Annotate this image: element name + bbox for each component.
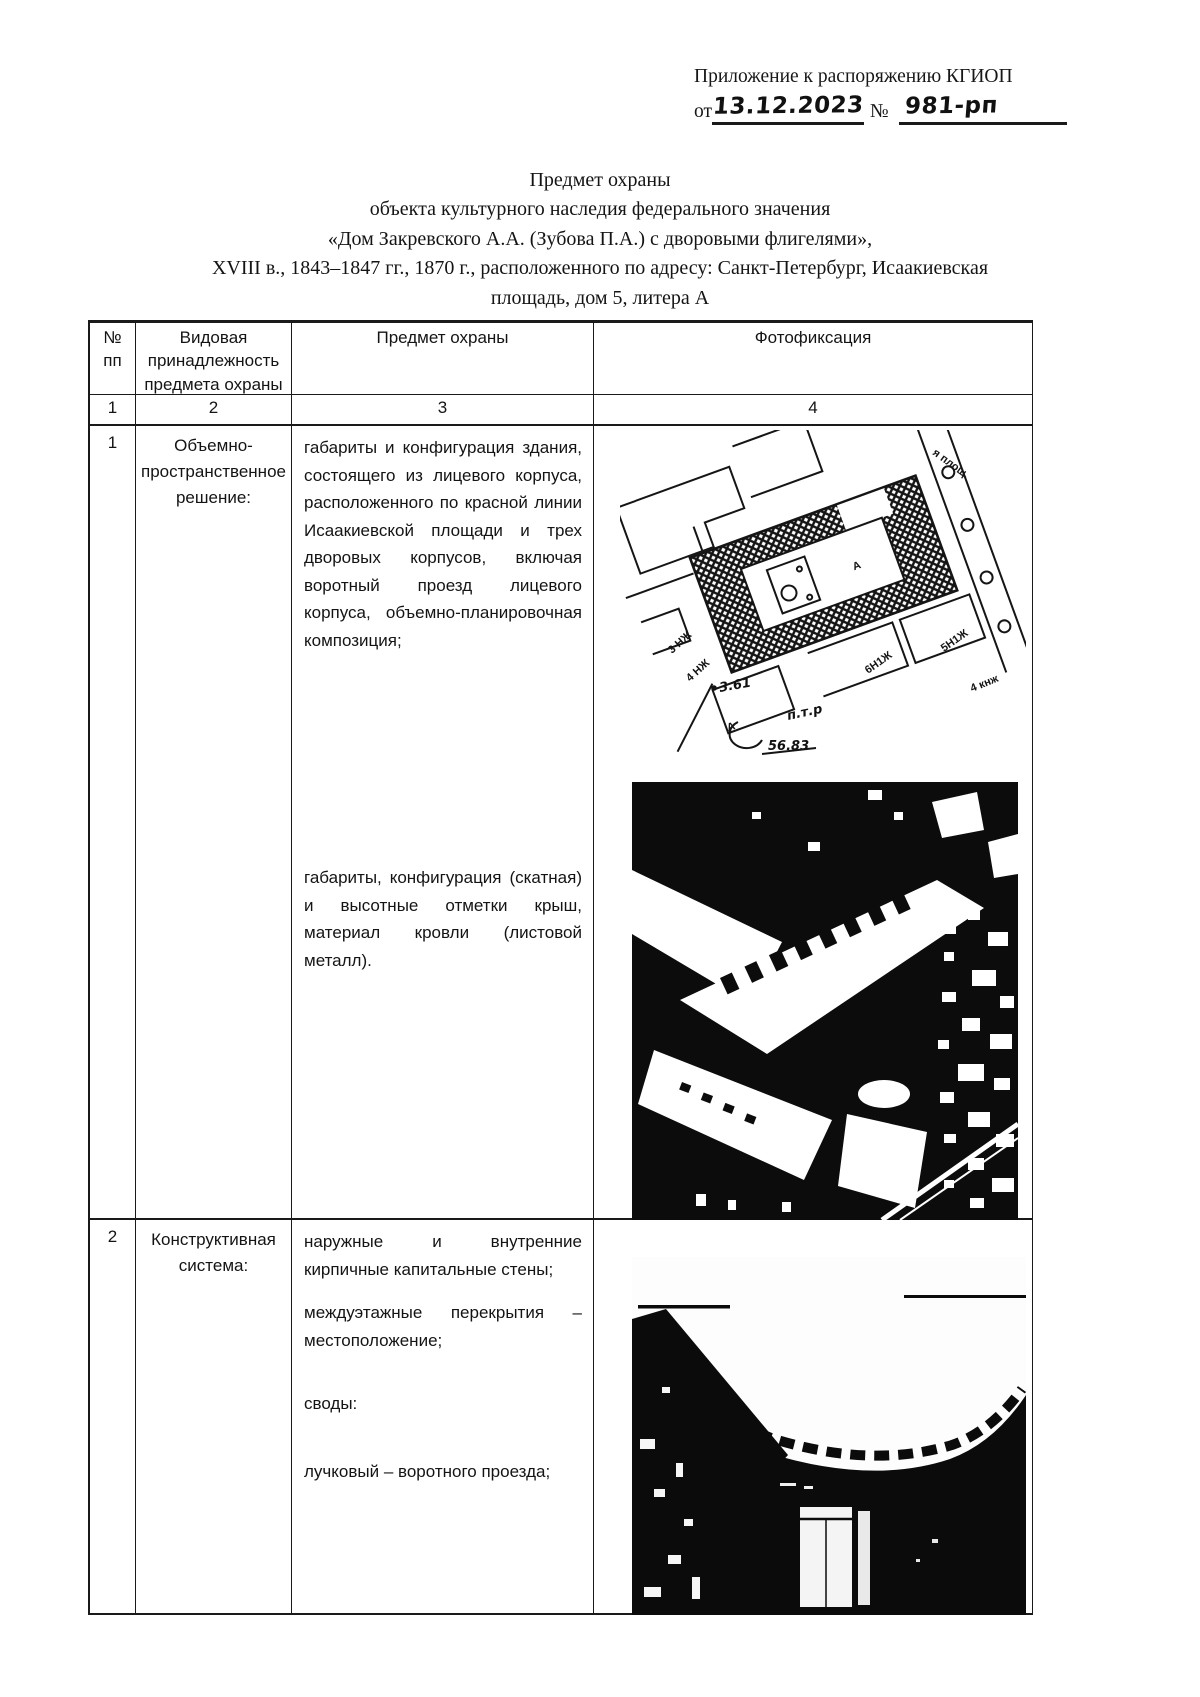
row1-photo-cell: А я площ. 3 НЖ 4 НЖ 3.61 А 6Н1Ж 5Н1Ж 4 к… [594, 426, 1033, 1220]
row1-paragraph-2: габариты, конфигурация (скатная) и высот… [304, 864, 582, 974]
title-line-2: объекта культурного наследия федеральног… [0, 195, 1200, 224]
row2-paragraph-2: междуэтажные перекрытия – местоположение… [304, 1299, 582, 1354]
row1-category: Объемно-пространственное решение: [136, 426, 292, 1220]
header-cell-subject: Предмет охраны [292, 323, 594, 395]
header-cell-num: № пп [90, 323, 136, 395]
column-number-1: 1 [90, 395, 136, 426]
annex-from-label: от [694, 99, 712, 124]
gateway-arch-photo-image [632, 1257, 1026, 1615]
annex-header-line2: от 13.12.2023 № 981-рп [694, 93, 1054, 124]
annex-number-underline: 981-рп [899, 93, 1067, 124]
title-line-1: Предмет охраны [0, 166, 1200, 195]
annex-no-label: № [870, 99, 889, 124]
header-num-line2: пп [90, 349, 135, 372]
table-row-1: 1 Объемно-пространственное решение: габа… [90, 426, 1033, 1220]
header-cell-photo: Фотофиксация [594, 323, 1033, 395]
row2-category: Конструктивная система: [136, 1220, 292, 1615]
annex-header-line1: Приложение к распоряжению КГИОП [694, 64, 1054, 89]
title-line-4: XVIII в., 1843–1847 гг., 1870 г., распол… [0, 254, 1200, 283]
row2-paragraph-1: наружные и внутренние кирпичные капиталь… [304, 1228, 582, 1283]
document-title: Предмет охраны объекта культурного насле… [0, 166, 1200, 313]
handwritten-number: 981-рп [904, 93, 999, 120]
row1-subject-text: габариты и конфигурация здания, состояще… [292, 426, 594, 1220]
row2-photo-cell [594, 1220, 1033, 1615]
protection-subject-table: № пп Видовая принадлежность предмета охр… [88, 320, 1033, 1615]
handwritten-date: 13.12.2023 [712, 93, 865, 121]
annex-date-underline: 13.12.2023 [712, 93, 864, 124]
row1-paragraph-1: габариты и конфигурация здания, состояще… [304, 434, 582, 654]
header-cell-category: Видовая принадлежность предмета охраны [136, 323, 292, 395]
table-row-2: 2 Конструктивная система: наружные и вну… [90, 1220, 1033, 1615]
aerial-roof-photo-image [632, 782, 1018, 1220]
row2-paragraph-3: своды: [304, 1390, 582, 1418]
column-number-2: 2 [136, 395, 292, 426]
row2-paragraph-4: лучковый – воротного проезда; [304, 1458, 582, 1486]
row1-number: 1 [90, 426, 136, 1220]
column-number-row: 1 2 3 4 [90, 395, 1033, 426]
site-plan-map-image: А я площ. 3 НЖ 4 НЖ 3.61 А 6Н1Ж 5Н1Ж 4 к… [620, 430, 1026, 760]
column-number-3: 3 [292, 395, 594, 426]
title-line-3: «Дом Закревского А.А. (Зубова П.А.) с дв… [0, 225, 1200, 254]
row2-subject-text: наружные и внутренние кирпичные капиталь… [292, 1220, 594, 1615]
map-elevation-dot [711, 685, 717, 691]
header-num-line1: № [90, 326, 135, 349]
row2-number: 2 [90, 1220, 136, 1615]
table-header-row: № пп Видовая принадлежность предмета охр… [90, 323, 1033, 395]
title-line-5: площадь, дом 5, литера А [0, 284, 1200, 313]
document-page: Приложение к распоряжению КГИОП от 13.12… [0, 0, 1200, 1697]
annex-header: Приложение к распоряжению КГИОП от 13.12… [694, 64, 1054, 125]
column-number-4: 4 [594, 395, 1033, 426]
